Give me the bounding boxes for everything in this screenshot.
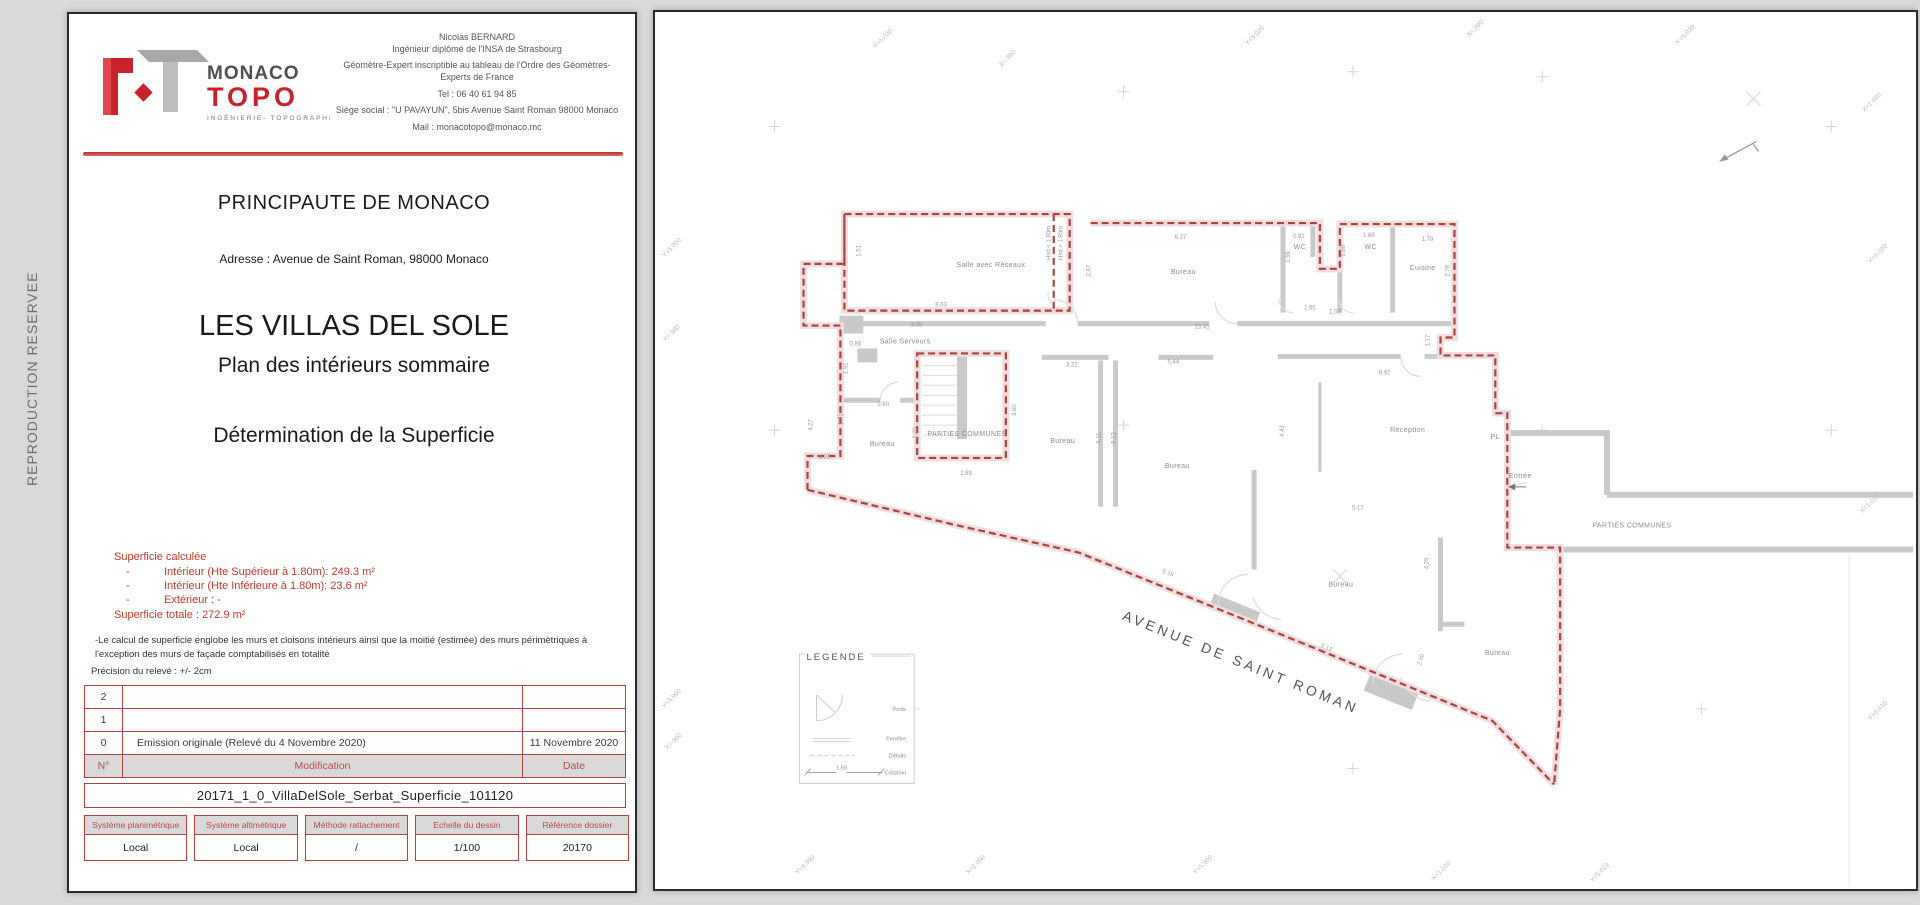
dimension-label: 3.60 xyxy=(1012,404,1018,416)
contact-mail: Mail : monacotopo@monaco.mc xyxy=(334,122,620,134)
rev-modification: Emission originale (Relevé du 4 Novembre… xyxy=(123,732,523,755)
room-label: Cuisine xyxy=(1410,265,1436,272)
meta-planimetric: Système planimétrique Local xyxy=(84,815,187,861)
contact-phone: Tel : 06 40 61 94 85 xyxy=(334,89,620,101)
legend-cotation: Cotation xyxy=(885,771,906,777)
slope-arrow-icon xyxy=(1720,141,1759,161)
revision-table: 2 1 0 Emission originale (Relevé du 4 No… xyxy=(84,685,626,778)
room-label: PARTIES COMMUNES xyxy=(1592,523,1671,530)
boundary-casing xyxy=(804,214,1561,784)
rev-date: 11 Novembre 2020 xyxy=(523,732,626,755)
plan-walls xyxy=(804,214,1913,784)
dimension-label: 1.56 xyxy=(1286,250,1292,262)
rev-date xyxy=(523,709,626,732)
dimension-label: 0.86 xyxy=(850,341,862,347)
dimension-label: 1.07 xyxy=(819,455,831,461)
grid-coordinate-label: Y=5.030 xyxy=(1675,23,1697,45)
dimension-label: 3.05 xyxy=(910,323,922,329)
dimension-label: 5.11 xyxy=(1097,432,1103,444)
dimension-label: 2.60 xyxy=(877,402,889,408)
dimension-label: 15.41 xyxy=(1195,325,1211,331)
dimension-label: Hsd > 1.80m xyxy=(1059,226,1065,260)
logo-m-highlight xyxy=(103,58,111,115)
superficie-total: Superficie totale : 272.9 m² xyxy=(114,610,375,621)
grid-coordinate-label: Y=5.010 xyxy=(1589,862,1611,884)
dimension-label: 4.29 xyxy=(1425,557,1431,569)
bullet-dash: - xyxy=(114,581,164,592)
rev-num: 1 xyxy=(85,709,123,732)
dimension-label: 1.65 xyxy=(1304,306,1316,312)
meta-reference: Référence dossier 20170 xyxy=(526,815,629,861)
grid-coordinate-label: X=.990 xyxy=(664,732,684,752)
dimension-label: 3.22 xyxy=(1066,362,1078,368)
rev-header-date: Date xyxy=(523,755,626,778)
room-label: WC xyxy=(1294,244,1306,251)
dimension-label: 5.44 xyxy=(1168,359,1180,365)
dimension-label: 1.17 xyxy=(1426,334,1432,346)
room-labels: Salle avec RéseauxBureauWCWCCuisineSalle… xyxy=(870,244,1672,657)
grid-coordinate-label: Y=5.020 xyxy=(1867,242,1889,264)
red-divider-rule xyxy=(83,152,623,156)
grid-coordinate-label: X=.990 xyxy=(1466,19,1486,39)
drawing-filename: 20171_1_0_VillaDelSole_Serbat_Superficie… xyxy=(84,783,626,808)
dimension-label: 5.17 xyxy=(1352,506,1364,512)
rev-header-modification: Modification xyxy=(123,755,523,778)
logo-brand-bottom: TOPO xyxy=(207,82,299,112)
superficie-subtitle: Détermination de la Superficie xyxy=(69,424,639,448)
room-label: Salle Serveurs xyxy=(880,338,931,345)
grid-coordinate-label: Y=4.990 xyxy=(794,854,816,876)
room-label: PARTIES COMMUNES xyxy=(928,431,1007,438)
meta-rattachement: Méthode rattachement / xyxy=(305,815,408,861)
dimension-label: 4.27 xyxy=(808,419,814,431)
logo-graphic: MONACO TOPO INGÉNIERIE- TOPOGRAPHIE xyxy=(85,34,330,134)
note-calcul: -Le calcul de superficie englobe les mur… xyxy=(95,634,595,662)
dimension-label: 5.13 xyxy=(1112,432,1118,444)
room-label: WC xyxy=(1365,244,1377,251)
dimension-label: 2.20 xyxy=(913,427,919,439)
note-precision: Précision du relevé : +/- 2cm xyxy=(91,665,595,679)
grid-coordinate-label: Y=4.990 xyxy=(661,687,683,709)
logo-brand-top: MONACO xyxy=(207,63,300,84)
street-label: AVENUE DE SAINT ROMAN xyxy=(1120,607,1361,717)
logo-diamond xyxy=(134,83,152,101)
room-label: Bureau xyxy=(1485,650,1510,657)
grid-coordinate-label: X=1.000 xyxy=(1861,91,1883,113)
plan-subtitle: Plan des intérieurs sommaire xyxy=(69,354,639,378)
dimension-label: 5.16 xyxy=(1161,568,1175,578)
floor-plan-drawing: AVENUE DE SAINT ROMAN LEGENDE Porte Fenê… xyxy=(655,12,1916,889)
room-label: Bureau xyxy=(1171,269,1196,276)
entrance-arrow-icon xyxy=(1508,483,1526,490)
dimension-label: 2.78 xyxy=(1445,264,1451,276)
superficie-block: Superficie calculée - Intérieur (Hte Sup… xyxy=(114,552,375,621)
dimension-label: 1.71 xyxy=(838,413,844,425)
legend-details: Détails xyxy=(889,754,907,760)
grid-crosses xyxy=(769,66,1838,775)
grid-coordinate-label: X=.980 xyxy=(998,49,1018,69)
monaco-topo-logo: MONACO TOPO INGÉNIERIE- TOPOGRAPHIE xyxy=(85,34,330,134)
room-label: Bureau xyxy=(1328,581,1353,588)
rev-header-num: N° xyxy=(85,755,123,778)
meta-table: Système planimétrique Local Système alti… xyxy=(84,815,629,861)
contact-order: Géomètre-Expert inscriptible au tableau … xyxy=(334,60,620,83)
contact-office: Siège social : "U PAVAYUN", 5bis Avenue … xyxy=(334,105,620,117)
contact-degree: Ingénieur diplômé de l'INSA de Strasbour… xyxy=(334,44,620,56)
room-label: Bureau xyxy=(870,441,895,448)
dimension-label: 6.97 xyxy=(1379,370,1391,376)
rev-modification xyxy=(123,686,523,709)
grid-coordinate-label: Y=5.000 xyxy=(661,237,683,259)
logo-t-stem xyxy=(163,62,178,112)
grid-coordinate-label: X=1.000 xyxy=(965,854,987,876)
notes-block: -Le calcul de superficie englobe les mur… xyxy=(95,634,595,678)
superficie-item: - Intérieur (Hte Inférieure à 1.80m): 23… xyxy=(114,581,375,592)
dimension-label: 2.89 xyxy=(960,471,972,477)
reproduction-reservee-label: REPRODUCTION RESERVEE xyxy=(24,386,40,486)
dimension-label: 2.47 xyxy=(1087,264,1093,276)
legend-porte: Porte xyxy=(892,707,906,713)
legend-box: LEGENDE Porte Fenêtre Détails Cotation 1… xyxy=(800,649,915,783)
meta-altimetric: Système altimétrique Local xyxy=(194,815,297,861)
rev-modification xyxy=(123,709,523,732)
dimension-label: 1.00 xyxy=(1341,244,1347,256)
dimension-label: 4.43 xyxy=(1280,425,1286,437)
room-label: Bureau xyxy=(1165,463,1190,470)
dimension-label: 1.51 xyxy=(856,244,862,256)
logo-tagline: INGÉNIERIE- TOPOGRAPHIE xyxy=(207,113,330,122)
grid-coordinate-label: Y=5.000 xyxy=(1192,854,1214,876)
legend-title: LEGENDE xyxy=(807,652,866,663)
bullet-dash: - xyxy=(114,595,164,606)
legend-fenetre: Fenêtre xyxy=(886,737,906,743)
contact-name: Nicolas BERNARD xyxy=(334,32,620,44)
dimension-label: 1.03 xyxy=(1329,310,1341,316)
dimension-label: 0.91 xyxy=(1293,234,1305,240)
contact-block: Nicolas BERNARD Ingénieur diplômé de l'I… xyxy=(334,32,620,139)
grid-coordinate-label: X=1.010 xyxy=(1430,860,1452,882)
meta-echelle: Echelle du dessin 1/100 xyxy=(415,815,518,861)
grid-coordinate-label: Y=5.020 xyxy=(1244,24,1266,46)
room-label: Salle avec Réseaux xyxy=(957,262,1026,269)
rev-num: 0 xyxy=(85,732,123,755)
grid-coordinate-label: Y=5.010 xyxy=(1867,699,1889,721)
rev-date xyxy=(523,686,626,709)
dimension-label: 1.91 xyxy=(843,362,849,374)
room-label: Bureau xyxy=(1050,438,1075,445)
room-label: Entrée xyxy=(1509,473,1532,480)
project-title: LES VILLAS DEL SOLE xyxy=(69,310,639,343)
dimension-label: 1.68 xyxy=(1363,233,1375,239)
superficie-item: - Intérieur (Hte Supérieur à 1.80m): 249… xyxy=(114,567,375,578)
grid-coordinate-label: Y=5.030 xyxy=(872,27,894,49)
room-label: Réception xyxy=(1390,427,1425,434)
superficie-heading: Superficie calculée xyxy=(114,552,375,563)
dimension-label: 6.37 xyxy=(1175,235,1187,241)
dimension-labels: 8.631.51Hsd < 1.80mHsd > 1.80m2.473.056.… xyxy=(808,226,1451,666)
stair-core xyxy=(957,355,967,439)
legend-sample-dim: 1.59 xyxy=(836,766,847,772)
dimension-label: 8.63 xyxy=(935,303,947,309)
bullet-dash: - xyxy=(114,567,164,578)
rev-num: 2 xyxy=(85,686,123,709)
grid-coordinate-label: X=.980 xyxy=(662,323,682,343)
dimension-label: 2.30 xyxy=(1417,653,1426,666)
stair-treads xyxy=(922,365,957,435)
address-line: Adresse : Avenue de Saint Roman, 98000 M… xyxy=(69,252,639,266)
title-block-sheet: MONACO TOPO INGÉNIERIE- TOPOGRAPHIE Nico… xyxy=(67,12,637,893)
country-title: PRINCIPAUTE DE MONACO xyxy=(69,192,639,215)
room-label: PL xyxy=(1491,434,1500,441)
floor-plan-sheet: AVENUE DE SAINT ROMAN LEGENDE Porte Fenê… xyxy=(653,10,1918,891)
logo-t-slab xyxy=(137,50,209,62)
superficie-item: - Extérieur : - xyxy=(114,595,375,606)
dimension-label: Hsd < 1.80m xyxy=(1047,226,1053,260)
dimension-label: 1.79 xyxy=(1422,237,1434,243)
